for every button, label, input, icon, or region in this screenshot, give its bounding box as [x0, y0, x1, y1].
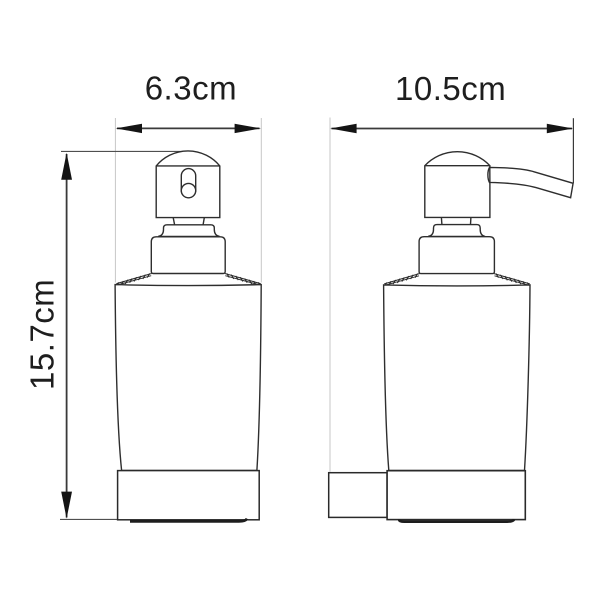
svg-text:15.7cm: 15.7cm: [24, 279, 61, 390]
svg-text:10.5cm: 10.5cm: [395, 70, 506, 107]
svg-text:6.3cm: 6.3cm: [145, 70, 237, 107]
